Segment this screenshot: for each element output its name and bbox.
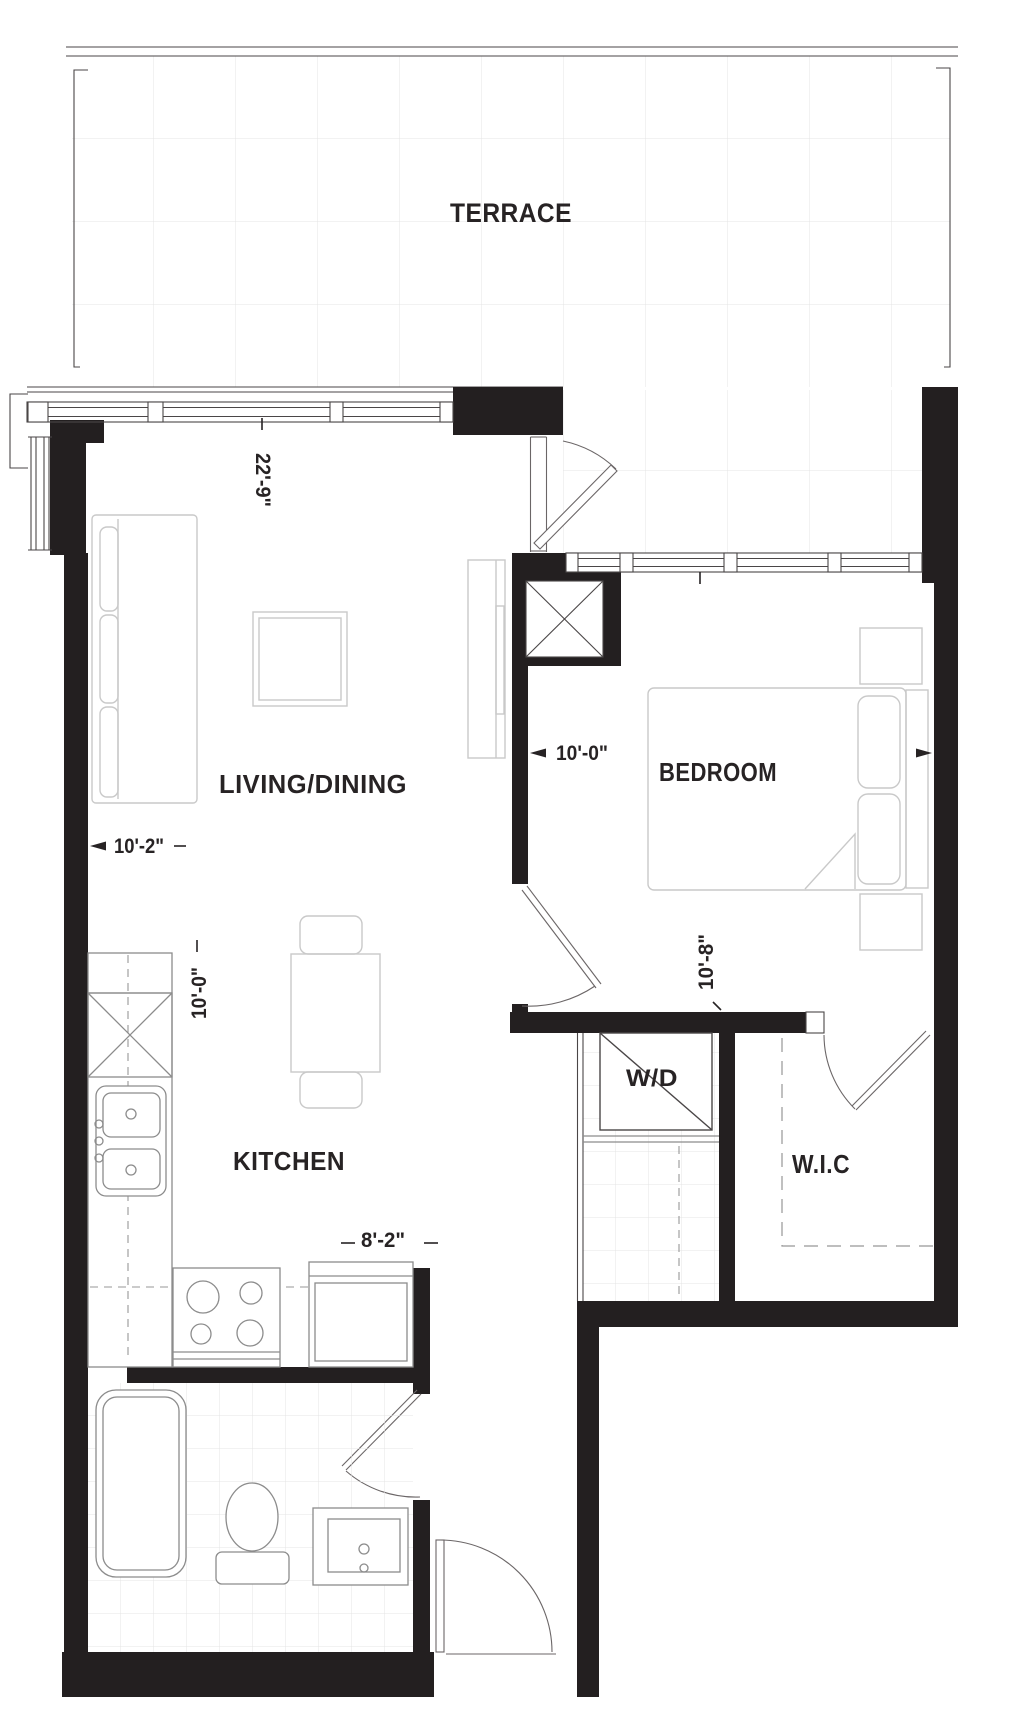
wall-left — [64, 553, 88, 1655]
wic-shelf-dashed — [782, 1038, 934, 1246]
wall-section-bottom — [577, 1301, 958, 1327]
dim-bedroom-depth: 10'-8" — [695, 572, 721, 1010]
vanity-sink — [313, 1508, 408, 1585]
kitchen-counter — [88, 953, 172, 1367]
wall-corridor-right — [577, 1327, 599, 1697]
bedroom-door-swing-arc — [522, 986, 595, 1006]
entry-door-leaf — [436, 1540, 444, 1652]
tv-console — [468, 560, 505, 758]
laundry-label: W/D — [626, 1065, 678, 1092]
entry-door-swing-arc — [440, 1540, 552, 1652]
dim-living-width: 10'-2" — [90, 835, 186, 858]
bathtub — [96, 1390, 186, 1577]
pillow — [858, 696, 900, 788]
wic-door-leaf — [856, 1035, 930, 1110]
svg-text:10'-2": 10'-2" — [114, 835, 164, 858]
wall-partition-jamb — [512, 1004, 528, 1013]
wall-bottom — [62, 1652, 434, 1697]
dining-set — [291, 916, 380, 1108]
nightstand — [860, 628, 922, 684]
bathroom — [88, 1383, 413, 1652]
coffee-table — [253, 612, 347, 706]
dining-table — [291, 954, 380, 1072]
wall-partition — [512, 666, 528, 884]
wall-wd-wic-partition — [719, 1033, 735, 1301]
blanket-fold — [805, 834, 855, 889]
wall-shaft-stub — [512, 553, 566, 572]
wall-bedroom-bottom — [510, 1012, 806, 1033]
washer-dryer-unit: W/D — [600, 1033, 712, 1130]
headboard — [906, 690, 928, 888]
wic-door-swing-arc — [824, 1035, 855, 1109]
dim-kitchen-width: 8'-2" — [341, 1229, 438, 1252]
dining-chair — [300, 916, 362, 954]
kitchen-label: KITCHEN — [233, 1146, 345, 1176]
wic-door-jamb — [806, 1012, 824, 1033]
kitchen: KITCHEN 10'-0" 8'-2" — [88, 916, 438, 1367]
walk-in-closet: W.I.C — [782, 1038, 934, 1246]
floor-plan-page: TERRACE — [0, 0, 1024, 1709]
fridge — [309, 1262, 413, 1367]
stove — [173, 1268, 280, 1367]
dining-chair — [300, 1072, 362, 1108]
wic-label: W.I.C — [792, 1149, 850, 1179]
wall-bath-corridor-upper — [413, 1268, 430, 1394]
wall-kitchen-bath — [127, 1367, 430, 1383]
wall-right-lower — [934, 583, 958, 1327]
bed — [648, 688, 928, 890]
svg-text:10'-0": 10'-0" — [556, 742, 608, 765]
wall-right-upper — [922, 387, 958, 583]
entry-door — [436, 1540, 552, 1652]
dishwasher — [88, 993, 172, 1077]
kitchen-sink — [95, 1086, 166, 1196]
terrace-label: TERRACE — [450, 198, 572, 228]
living-dining-label: LIVING/DINING — [219, 769, 407, 799]
dim-kitchen-depth: 10'-0" — [188, 940, 211, 1019]
laundry-closet: W/D — [578, 1033, 720, 1301]
bedroom-label: BEDROOM — [659, 757, 777, 787]
bedroom-door — [522, 886, 601, 1006]
wall-top-block — [453, 387, 563, 435]
svg-text:10'-0": 10'-0" — [188, 967, 211, 1019]
nightstand — [860, 894, 922, 950]
bedroom-door-leaf — [522, 890, 596, 988]
wall-left-upper-b — [50, 443, 86, 555]
wic-door — [824, 1031, 930, 1110]
floor-plan: TERRACE — [0, 0, 1024, 1709]
wall-left-upper-a — [50, 420, 104, 443]
sofa — [92, 515, 197, 803]
wall-bath-corridor-lower — [413, 1500, 430, 1652]
living-dining-room: LIVING/DINING 22'-9" 10'-2" — [90, 418, 505, 858]
svg-text:10'-8": 10'-8" — [695, 934, 718, 990]
bedroom-window — [566, 553, 922, 572]
living-window — [27, 402, 453, 422]
svg-text:8'-2": 8'-2" — [361, 1229, 405, 1252]
pillow — [858, 794, 900, 884]
terrace: TERRACE — [27, 47, 958, 553]
dim-living-window-width: 22'-9" — [251, 453, 274, 507]
